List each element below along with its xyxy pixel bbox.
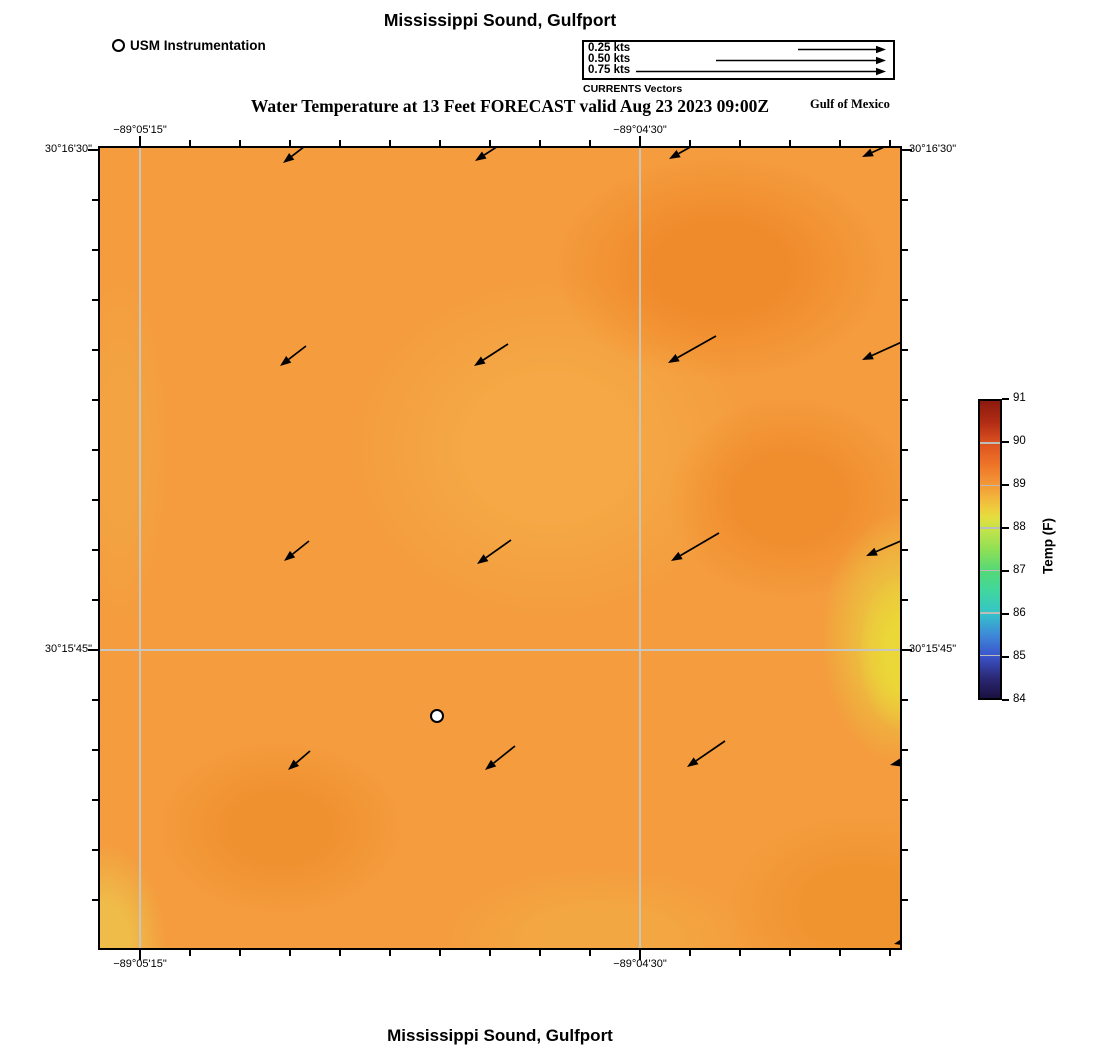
axis-tick (902, 899, 908, 901)
axis-tick (689, 950, 691, 956)
colorbar-tick-label: 85 (1013, 650, 1026, 662)
axis-tick (92, 399, 98, 401)
currents-legend-arrows (584, 42, 892, 77)
axis-tick (839, 950, 841, 956)
axis-tick (902, 699, 908, 701)
colorbar-gridline (980, 612, 1000, 614)
colorbar-tick (1002, 613, 1009, 615)
colorbar-tick-label: 84 (1013, 693, 1026, 705)
axis-tick (902, 599, 908, 601)
instrumentation-legend: USM Instrumentation (112, 37, 266, 53)
usm-station-marker (430, 709, 444, 723)
colorbar-axis-label: Temp (F) (1041, 518, 1056, 574)
axis-tick (902, 449, 908, 451)
y-axis-label-right: 30°15'45" (909, 643, 956, 655)
colorbar-gridline (980, 485, 1000, 487)
axis-tick (902, 499, 908, 501)
x-axis-label-top: −89°05'15" (113, 124, 167, 136)
axis-tick (739, 140, 741, 146)
axis-tick (839, 140, 841, 146)
axis-tick (589, 950, 591, 956)
axis-tick (739, 950, 741, 956)
axis-tick (339, 950, 341, 956)
gulf-of-mexico-label: Gulf of Mexico (810, 97, 890, 112)
axis-tick (92, 449, 98, 451)
axis-tick (92, 299, 98, 301)
colorbar-tick-label: 89 (1013, 478, 1026, 490)
axis-tick (489, 140, 491, 146)
y-axis-label-right: 30°16'30" (909, 143, 956, 155)
axis-tick (339, 140, 341, 146)
bottom-title: Mississippi Sound, Gulfport (0, 1026, 1000, 1046)
axis-tick (439, 950, 441, 956)
page: Mississippi Sound, Gulfport USM Instrume… (0, 0, 1100, 1050)
colorbar-tick-label: 91 (1013, 392, 1026, 404)
axis-tick (902, 849, 908, 851)
x-axis-label-bottom: −89°05'15" (113, 958, 167, 970)
axis-tick (289, 950, 291, 956)
axis-tick (92, 849, 98, 851)
axis-tick (439, 140, 441, 146)
axis-tick (389, 950, 391, 956)
axis-tick (789, 140, 791, 146)
axis-tick (589, 140, 591, 146)
axis-tick (902, 399, 908, 401)
currents-legend-caption: CURRENTS Vectors (583, 83, 682, 95)
colorbar (978, 399, 1002, 700)
axis-tick (539, 950, 541, 956)
colorbar-tick-label: 86 (1013, 607, 1026, 619)
axis-tick (902, 549, 908, 551)
axis-tick (92, 349, 98, 351)
y-axis-label-left: 30°16'30" (30, 143, 92, 155)
axis-tick (92, 499, 98, 501)
axis-tick (92, 699, 98, 701)
current-vector-layer (100, 148, 900, 948)
station-circle-icon (112, 39, 125, 52)
axis-tick (189, 950, 191, 956)
instrumentation-label: USM Instrumentation (130, 38, 266, 53)
axis-tick (189, 140, 191, 146)
axis-tick (889, 140, 891, 146)
colorbar-tick (1002, 570, 1009, 572)
x-axis-label-bottom: −89°04'30" (613, 958, 667, 970)
colorbar-tick-label: 87 (1013, 564, 1026, 576)
axis-tick (902, 199, 908, 201)
axis-tick (389, 140, 391, 146)
axis-tick (639, 136, 641, 146)
axis-tick (889, 950, 891, 956)
colorbar-gridline (980, 442, 1000, 444)
page-title: Mississippi Sound, Gulfport (0, 10, 1000, 31)
colorbar-tick (1002, 398, 1009, 400)
axis-tick (239, 950, 241, 956)
axis-tick (689, 140, 691, 146)
axis-tick (902, 799, 908, 801)
colorbar-tick (1002, 699, 1009, 701)
colorbar-gridline (980, 527, 1000, 529)
axis-tick (92, 549, 98, 551)
x-axis-label-top: −89°04'30" (613, 124, 667, 136)
axis-tick (289, 140, 291, 146)
axis-tick (902, 749, 908, 751)
y-axis-label-left: 30°15'45" (30, 643, 92, 655)
forecast-subtitle: Water Temperature at 13 Feet FORECAST va… (100, 96, 920, 117)
axis-tick (902, 249, 908, 251)
axis-tick (902, 349, 908, 351)
axis-tick (139, 136, 141, 146)
axis-tick (92, 799, 98, 801)
colorbar-tick (1002, 527, 1009, 529)
colorbar-tick (1002, 484, 1009, 486)
axis-tick (92, 899, 98, 901)
axis-tick (92, 749, 98, 751)
currents-legend-box: 0.25 kts 0.50 kts 0.75 kts (582, 40, 895, 80)
axis-tick (92, 599, 98, 601)
axis-tick (92, 249, 98, 251)
axis-tick (489, 950, 491, 956)
axis-tick (539, 140, 541, 146)
colorbar-tick-label: 90 (1013, 435, 1026, 447)
map-area (100, 148, 900, 948)
colorbar-gridline (980, 570, 1000, 572)
colorbar-gridline (980, 655, 1000, 657)
axis-tick (92, 199, 98, 201)
colorbar-tick-label: 88 (1013, 521, 1026, 533)
axis-tick (902, 299, 908, 301)
colorbar-tick (1002, 441, 1009, 443)
axis-tick (789, 950, 791, 956)
colorbar-tick (1002, 656, 1009, 658)
axis-tick (239, 140, 241, 146)
